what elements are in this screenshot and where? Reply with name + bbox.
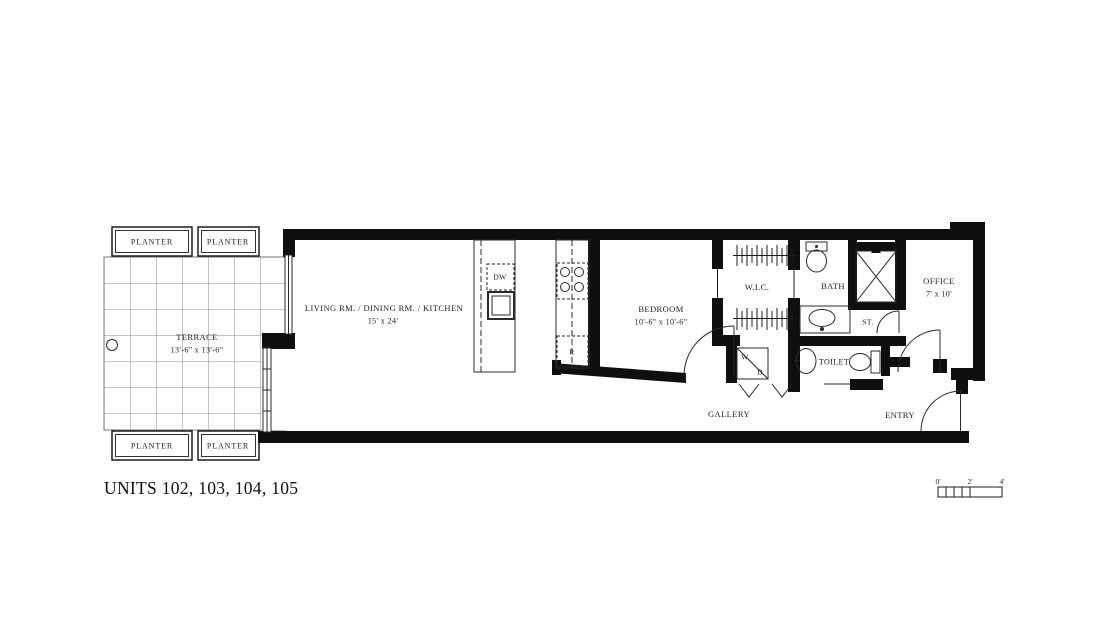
gallery-label: GALLERY [708, 409, 750, 419]
planter-label: PLANTER [131, 442, 173, 451]
bedroom-dims: 10'-6" x 10'-6" [635, 318, 688, 327]
sheet-title: UNITS 102, 103, 104, 105 [104, 478, 298, 499]
closet-rod-bottom [733, 308, 796, 330]
living-room-dims: 15' x 24' [368, 317, 398, 326]
powder-toilet-icon [850, 351, 881, 373]
kitchen-island [474, 240, 515, 372]
entry-door [921, 391, 961, 431]
office-dims: 7' x 10' [926, 290, 952, 299]
terrace-label: TERRACE [176, 332, 218, 342]
dishwasher-label: DW [493, 273, 506, 282]
scale-bar [938, 487, 1002, 497]
toilet-icon [806, 242, 827, 272]
dryer-label: D [757, 368, 763, 377]
entry-label: ENTRY [885, 410, 915, 420]
scale-tick-4: 4' [999, 477, 1004, 486]
terrace-dims: 13'-6" x 13'-6" [171, 346, 224, 355]
bedroom-label: BEDROOM [638, 304, 683, 314]
sink-icon [488, 292, 514, 319]
walls [258, 222, 985, 443]
bifold-door-mark [739, 384, 759, 397]
terrace-grid [104, 257, 287, 430]
planter-label: PLANTER [207, 442, 249, 451]
wic-label: W.I.C. [745, 282, 770, 292]
office-label: OFFICE [923, 276, 955, 286]
scale-tick-0: 0' [935, 477, 940, 486]
bath-label: BATH [821, 281, 845, 291]
window-lower [263, 348, 271, 432]
shower-icon [856, 245, 896, 302]
floor-plan-drawing [0, 0, 1110, 623]
bath-sink-icon [809, 310, 835, 327]
refrigerator-label: R [569, 348, 574, 357]
washer-label: W [741, 353, 748, 362]
scale-tick-2: 2' [967, 477, 972, 486]
planter-label: PLANTER [131, 238, 173, 247]
storage-door [877, 311, 899, 333]
bath-vanity [800, 306, 850, 333]
toilet-label: TOILET [819, 358, 849, 367]
terrace-drain-icon [107, 340, 118, 351]
closet-rod-top [733, 245, 796, 266]
window-upper [285, 255, 292, 334]
living-room-label: LIVING RM. / DINING RM. / KITCHEN [305, 303, 463, 313]
planter-label: PLANTER [207, 238, 249, 247]
floor-plan-sheet: TERRACE 13'-6" x 13'-6" PLANTER PLANTER … [0, 0, 1110, 623]
storage-label: ST. [862, 318, 873, 327]
